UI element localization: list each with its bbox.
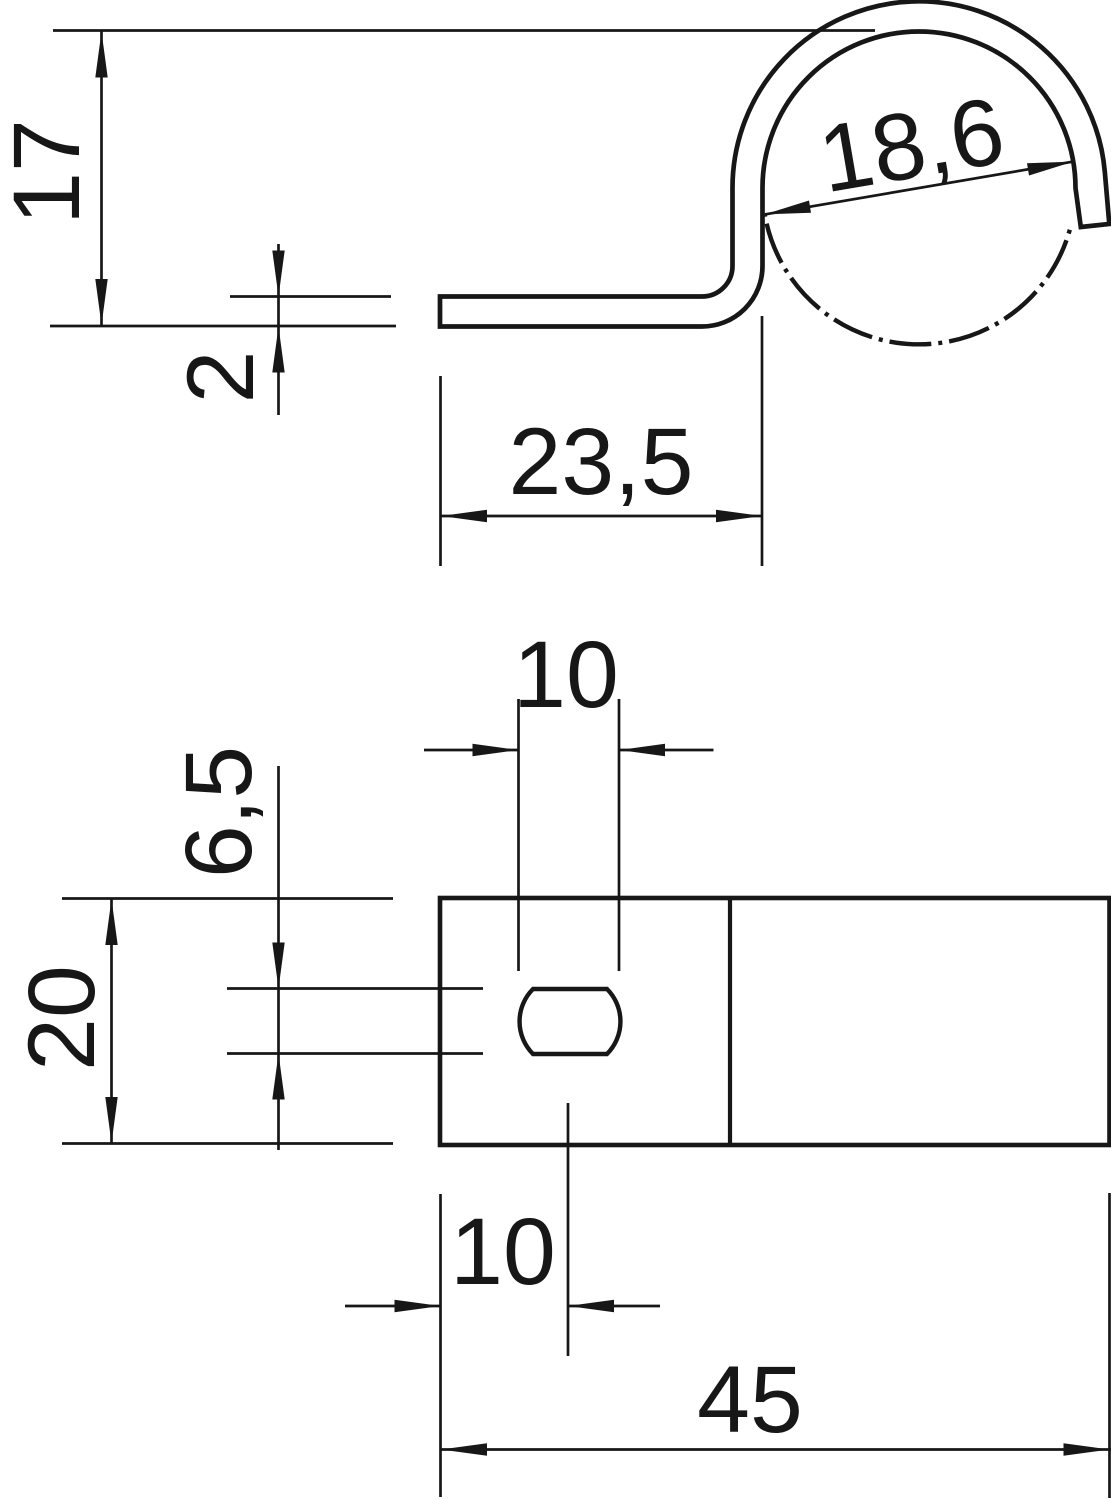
svg-text:2: 2 (168, 351, 274, 404)
svg-text:10: 10 (513, 622, 619, 728)
svg-text:20: 20 (9, 965, 115, 1071)
svg-text:23,5: 23,5 (509, 409, 694, 515)
svg-text:18,6: 18,6 (812, 78, 1012, 214)
svg-text:45: 45 (697, 1347, 803, 1453)
svg-text:6,5: 6,5 (166, 746, 272, 878)
svg-text:10: 10 (450, 1199, 556, 1305)
svg-text:17: 17 (0, 119, 100, 225)
